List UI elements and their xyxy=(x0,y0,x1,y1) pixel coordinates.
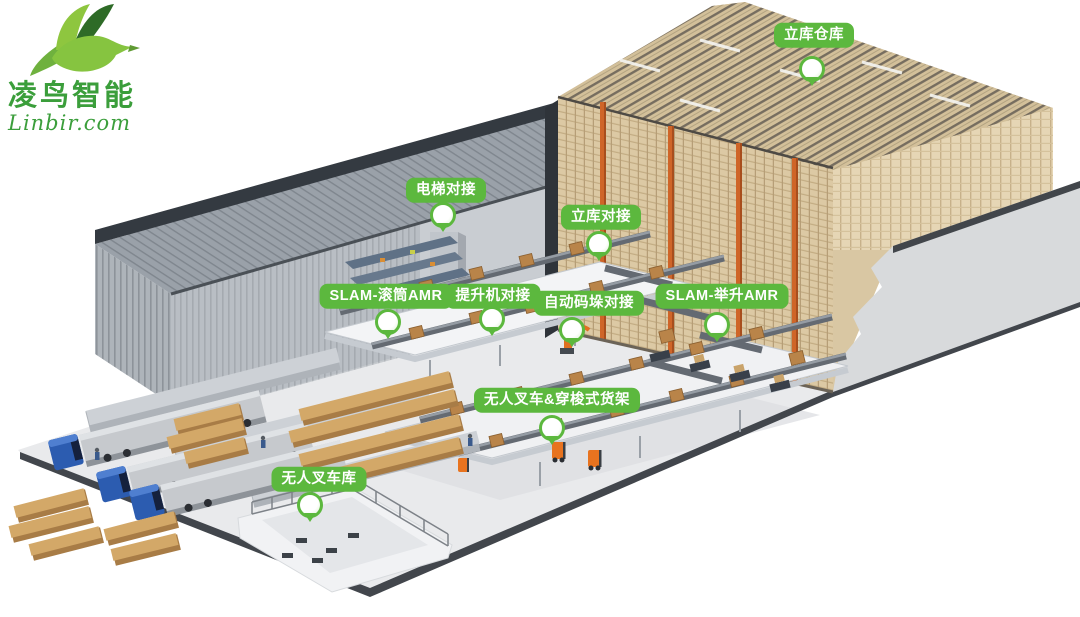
callout-pin-slam-lifting-amr xyxy=(704,312,730,338)
company-logo: 凌鸟智能 Linbir.com xyxy=(8,2,178,135)
company-website: Linbir.com xyxy=(8,112,178,135)
callout-asrs-docking: 立库对接 xyxy=(561,205,641,230)
bird-logo-icon xyxy=(22,2,150,80)
callout-pin-slam-roller-amr xyxy=(375,309,401,335)
warehouse-illustration: 凌鸟智能 Linbir.com 立库仓库 电梯对接 立库对接 SLAM-滚筒AM… xyxy=(0,0,1080,617)
callout-pin-auto-palletizing xyxy=(559,317,585,343)
callout-pin-asrs-docking xyxy=(586,231,612,257)
callout-pin-asrs-warehouse xyxy=(799,56,825,82)
callout-slam-lifting-amr: SLAM-举升AMR xyxy=(656,284,789,309)
callout-hoist-docking: 提升机对接 xyxy=(446,284,541,309)
callout-pin-hoist-docking xyxy=(479,306,505,332)
callout-forklift-shuttle-rack: 无人叉车&穿梭式货架 xyxy=(474,388,640,413)
callout-asrs-warehouse: 立库仓库 xyxy=(774,23,854,48)
company-name: 凌鸟智能 xyxy=(8,82,178,111)
callout-pin-forklift-shuttle xyxy=(539,415,565,441)
callout-slam-roller-amr: SLAM-滚筒AMR xyxy=(320,284,453,309)
callout-auto-palletizing-docking: 自动码垛对接 xyxy=(534,291,644,316)
callout-elevator-docking: 电梯对接 xyxy=(406,178,486,203)
callout-pin-forklift-garage xyxy=(297,492,323,518)
callout-forklift-garage: 无人叉车库 xyxy=(272,467,367,492)
callout-pin-elevator-docking xyxy=(430,202,456,228)
